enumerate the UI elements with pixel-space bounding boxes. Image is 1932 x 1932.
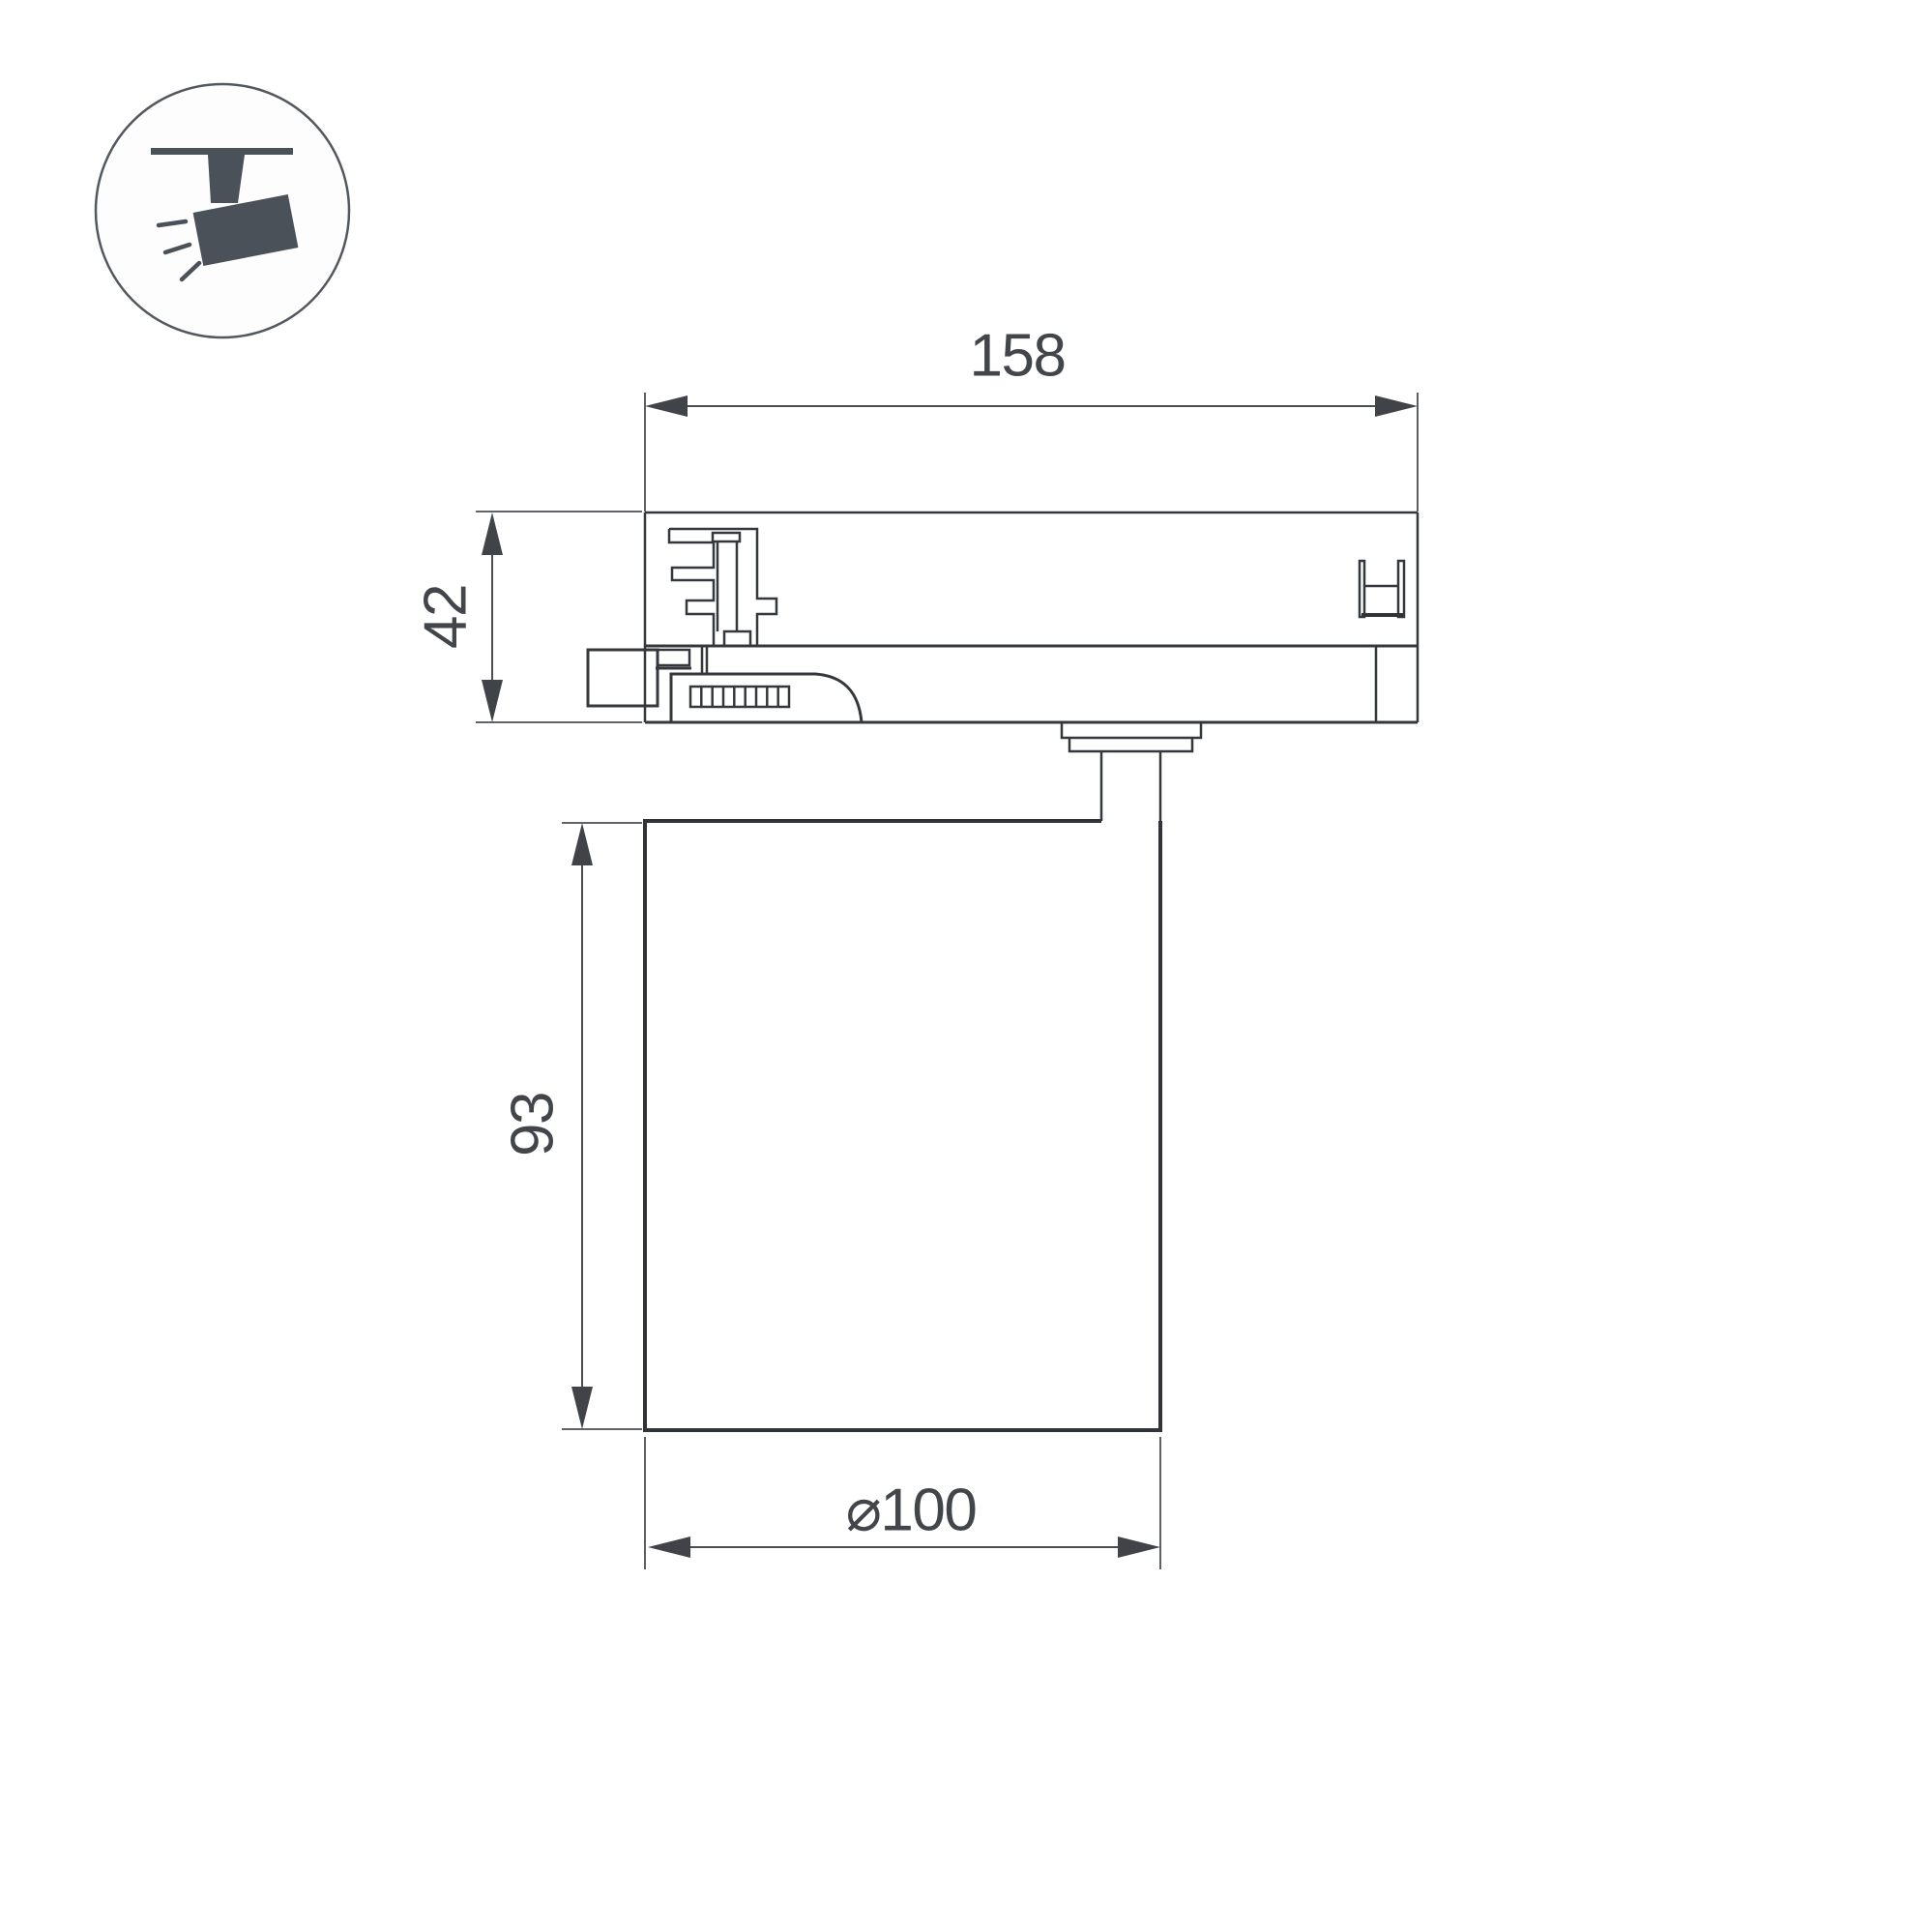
arrowhead-left	[645, 395, 688, 417]
left-end-cap	[588, 650, 658, 706]
dimension-label-diameter-100: ⌀100	[846, 1478, 977, 1544]
arrowhead-top	[482, 512, 503, 555]
stem	[1101, 751, 1160, 821]
adapter-contact-assembly	[669, 529, 776, 674]
extension-lines	[562, 823, 642, 1429]
lock-pin	[717, 542, 737, 631]
dimension-label-158: 158	[970, 323, 1066, 390]
vent-grill	[690, 687, 789, 707]
extension-lines	[645, 393, 1418, 512]
u-clip-left-wall	[1360, 561, 1364, 617]
lock-pin-foot	[724, 631, 750, 646]
track-spotlight-icon	[96, 84, 349, 337]
u-clip-right-wall	[1398, 561, 1404, 617]
dimension-body-height: 93	[500, 823, 643, 1429]
arrowhead-bottom	[571, 1387, 593, 1429]
technical-drawing-page: 158 42 93 ⌀100	[0, 0, 1932, 1932]
flange-step-1	[1062, 722, 1201, 738]
arrowhead-top	[571, 823, 593, 865]
dimension-body-diameter: ⌀100	[645, 1437, 1160, 1569]
adapter-lower-section	[588, 650, 862, 722]
icon-track-bar	[151, 148, 293, 155]
vent-grill-frame	[690, 687, 789, 707]
track-light-dimension-drawing: 158 42 93 ⌀100	[0, 0, 1932, 1932]
track-adapter-outline	[645, 512, 1418, 722]
lock-pin-cap	[713, 533, 740, 542]
dimension-label-93: 93	[500, 1093, 567, 1156]
contact-outline-left-prongs	[669, 529, 714, 646]
dimension-adapter-height: 42	[413, 512, 643, 722]
extension-lines	[476, 512, 642, 722]
contact-outline-right	[669, 529, 776, 646]
arrowhead-right	[1375, 395, 1418, 417]
arrowhead-bottom	[482, 680, 503, 722]
arrowhead-right	[1118, 1537, 1160, 1558]
stem-and-flange	[1062, 722, 1201, 821]
latch-box	[658, 650, 689, 665]
lamp-body	[645, 821, 1160, 1430]
dimension-label-42: 42	[413, 585, 480, 649]
plate-slot	[702, 646, 707, 674]
dimension-track-width: 158	[645, 323, 1418, 512]
flange-step-2	[1069, 738, 1192, 751]
adapter-u-clip	[1360, 561, 1404, 617]
arrowhead-left	[648, 1537, 690, 1558]
vent-grill-slats	[701, 687, 777, 707]
